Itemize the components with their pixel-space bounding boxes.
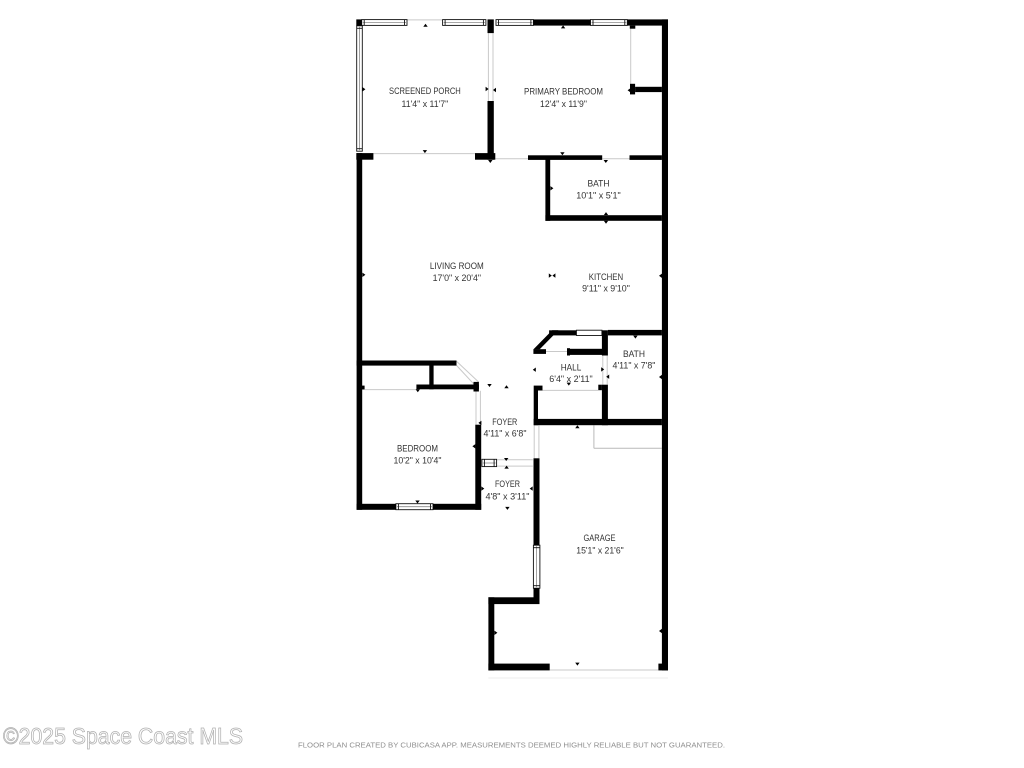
svg-text:17'0" x 20'4": 17'0" x 20'4" <box>433 272 481 283</box>
svg-text:BATH: BATH <box>588 178 610 189</box>
svg-text:11'4" x 11'7": 11'4" x 11'7" <box>402 98 449 109</box>
svg-text:FOYER: FOYER <box>495 478 520 489</box>
svg-text:4'8" x 3'11": 4'8" x 3'11" <box>486 490 530 501</box>
svg-text:BEDROOM: BEDROOM <box>397 443 438 454</box>
svg-text:15'1" x 21'6": 15'1" x 21'6" <box>576 545 623 556</box>
svg-text:HALL: HALL <box>561 362 582 373</box>
svg-text:9'11" x 9'10": 9'11" x 9'10" <box>582 283 630 294</box>
svg-text:KITCHEN: KITCHEN <box>589 271 623 282</box>
svg-text:©2025 Space Coast MLS: ©2025 Space Coast MLS <box>3 723 243 749</box>
svg-text:10'1" x 5'1": 10'1" x 5'1" <box>576 190 621 201</box>
svg-text:SCREENED PORCH: SCREENED PORCH <box>389 85 461 96</box>
svg-text:BATH: BATH <box>623 348 645 359</box>
svg-text:4'11" x 6'8": 4'11" x 6'8" <box>484 427 527 438</box>
svg-text:12'4" x 11'9": 12'4" x 11'9" <box>540 98 587 109</box>
svg-text:10'2" x 10'4": 10'2" x 10'4" <box>394 455 442 466</box>
svg-text:FOYER: FOYER <box>492 416 517 427</box>
svg-text:FLOOR PLAN CREATED BY CUBICASA: FLOOR PLAN CREATED BY CUBICASA APP. MEAS… <box>298 742 725 750</box>
svg-text:GARAGE: GARAGE <box>583 532 615 543</box>
svg-text:PRIMARY BEDROOM: PRIMARY BEDROOM <box>524 86 603 97</box>
svg-text:4'11" x 7'8": 4'11" x 7'8" <box>613 359 656 370</box>
svg-text:6'4" x 2'11": 6'4" x 2'11" <box>549 373 593 384</box>
svg-text:LIVING ROOM: LIVING ROOM <box>430 260 484 271</box>
